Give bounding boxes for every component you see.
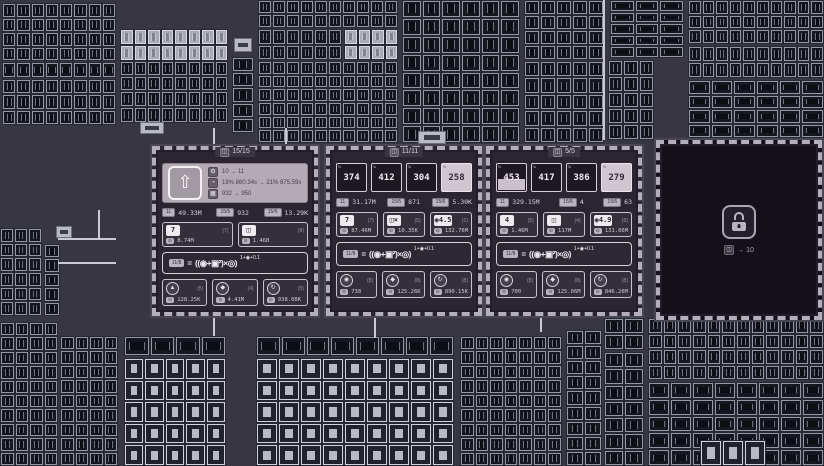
cell [32, 111, 44, 124]
cell [45, 352, 58, 364]
number-tile[interactable]: ↻ 417 [531, 163, 562, 192]
connector-tab [234, 38, 252, 52]
cell [784, 30, 796, 43]
stat-item: 15/6 5.30K [432, 198, 472, 207]
cell [573, 62, 587, 76]
cell [1, 352, 14, 364]
cell [60, 80, 72, 93]
cell [703, 63, 715, 77]
stat-item: 11 329.15M [496, 198, 540, 207]
cell [385, 117, 397, 129]
action-count: (8) [527, 278, 533, 284]
tile-value: 304 [413, 173, 429, 183]
cell [534, 409, 547, 421]
cell [279, 402, 299, 422]
cell [1, 381, 14, 393]
cell [525, 111, 539, 125]
cell [259, 30, 271, 44]
stat-badge: 15/5 [387, 198, 405, 207]
slot-cost: 132.76M [445, 228, 468, 234]
cell [315, 130, 327, 142]
cell [257, 424, 277, 444]
cell [660, 24, 683, 34]
cell [385, 130, 397, 142]
cell [605, 451, 623, 465]
action-button[interactable]: ◆ (8) ⊙ 125.06M [542, 271, 584, 298]
cell [29, 258, 41, 271]
cell [273, 62, 285, 74]
cell [490, 351, 503, 363]
cell [461, 366, 474, 378]
cell [589, 46, 603, 59]
cell [1, 366, 14, 378]
cell [423, 108, 441, 124]
cell [148, 77, 160, 90]
circuit-trace [58, 262, 116, 264]
cell [636, 13, 659, 23]
panel-body: ↻ 374 ↻ 412 ↻ 304 ↻ 258 11 [336, 156, 472, 306]
cell [3, 19, 15, 32]
cell [573, 111, 587, 125]
upgrade-slots-row: 7 (7) ⊙ 87.46M ◫× (5) ⊙ 10.35K [336, 212, 472, 237]
cell [624, 93, 637, 107]
cell [501, 126, 519, 142]
cell [279, 424, 299, 444]
cell [343, 89, 355, 101]
coin-icon: ⊙ [547, 228, 555, 234]
cell [780, 81, 801, 94]
slot-tile: ◉4.9 [594, 215, 613, 226]
cell [462, 37, 480, 53]
cell [567, 437, 583, 450]
cell [105, 395, 118, 407]
cell [207, 402, 225, 422]
cell [442, 73, 460, 89]
lock-icon[interactable] [722, 205, 756, 239]
cell [693, 383, 713, 398]
cell [61, 337, 74, 349]
cell [781, 450, 801, 465]
cell [76, 453, 89, 465]
cell [609, 61, 622, 75]
action-value: 890.15K [445, 289, 468, 295]
cell [32, 95, 44, 108]
cell [757, 96, 778, 109]
actions-row: ◉ (8) ⊙ 700 ◆ (8) ⊙ 125.06M [496, 271, 632, 298]
number-tile[interactable]: ↻ 386 [566, 163, 597, 192]
number-tile[interactable]: ↻ 304 [406, 163, 437, 192]
action-value: 846.26M [605, 289, 628, 295]
cell [462, 73, 480, 89]
action-button[interactable]: ◉ (8) ⊙ 700 [496, 271, 537, 298]
cell [74, 4, 86, 17]
cell-grid-block [60, 336, 118, 466]
action-button[interactable]: ◆ (8) ⊙ 125.26K [382, 271, 424, 298]
cell [301, 359, 321, 379]
cell [689, 1, 701, 14]
formula-exponent: 1+◉+0.1 [414, 246, 434, 252]
action-button[interactable]: ◆ (4) ⊙ 4.41M [212, 279, 257, 306]
cell [371, 76, 383, 88]
cell [90, 337, 103, 349]
upgrade-preview-card: ⇧ ⚙ 10 → 11 ◔ 19% 860.34s → 21% 875.59s … [162, 163, 308, 203]
cell [541, 16, 555, 29]
cell [329, 1, 341, 13]
cell [781, 366, 794, 380]
panel-locked-station: ◫ → 10 [656, 140, 822, 320]
cell [202, 337, 226, 355]
slot-cost: 87.46M [351, 228, 371, 234]
cell [287, 117, 299, 129]
cell [609, 109, 622, 123]
cell [490, 453, 503, 465]
cell [534, 438, 547, 450]
cell [605, 434, 623, 448]
stat-badge: 15/5 [559, 198, 577, 207]
cell [442, 19, 460, 35]
panel-body: ⇧ ⚙ 10 → 11 ◔ 19% 860.34s → 21% 875.59s … [162, 156, 308, 306]
cell-grid-block [0, 322, 58, 466]
cell [660, 1, 683, 11]
number-tile[interactable]: ↻ 412 [371, 163, 402, 192]
cell [279, 381, 299, 401]
cell [189, 77, 201, 90]
cell [202, 92, 214, 106]
tile-value: 374 [343, 173, 359, 183]
cell [16, 323, 29, 335]
cell-grid-block [2, 62, 116, 78]
stat-value: 871 [408, 198, 420, 206]
cell [482, 19, 500, 35]
coin-icon: ⊙ [216, 297, 224, 303]
cell [411, 381, 431, 401]
cell [61, 395, 74, 407]
cell [166, 402, 184, 422]
cell [693, 350, 706, 364]
cell [722, 350, 735, 364]
cell [649, 400, 669, 415]
cell [381, 337, 404, 355]
cell [17, 48, 29, 61]
formula-body: ((◉+▣²)×◎) [369, 249, 411, 260]
cell [433, 359, 453, 379]
connector-tab [418, 131, 446, 144]
cell [501, 90, 519, 106]
cell [567, 331, 583, 344]
cell [135, 77, 147, 90]
cell [135, 108, 147, 122]
cell [301, 381, 321, 401]
unlock-requirement: ◫ → 10 [724, 245, 754, 255]
upgrade-button[interactable]: ⇧ [168, 166, 202, 200]
cell [649, 417, 669, 432]
circuit-board: ◫ 15/15 ⇧ ⚙ 10 → 11 ◔ 19% 860.34s → 21% … [0, 0, 824, 466]
panel-station-2: ◫ 11/11 ↻ 374 ↻ 412 ↻ 304 ↻ 258 [326, 146, 482, 316]
cell [737, 335, 750, 349]
cell [482, 90, 500, 106]
upgrade-slot[interactable]: 7 (7) ⊙ 8.74M [162, 222, 233, 247]
cell [259, 117, 271, 129]
cell [89, 4, 101, 17]
cell [585, 376, 601, 389]
cell [257, 402, 277, 422]
cell [90, 453, 103, 465]
cell [359, 46, 371, 60]
slot-count: (7) [222, 228, 228, 234]
cell-grid-block [608, 60, 654, 140]
cell [216, 108, 228, 122]
slot-count: (5) [415, 218, 421, 224]
cell [737, 366, 750, 380]
cell [371, 89, 383, 101]
upgrade-row: ▦ 932 → 950 [208, 189, 302, 199]
cell [624, 109, 637, 123]
panel-header: ◫ 5/5 [548, 147, 580, 157]
cell [186, 445, 204, 465]
cell [30, 395, 43, 407]
cell [273, 30, 285, 44]
cell [433, 424, 453, 444]
action-button[interactable]: ↻ (8) ⊙ 846.26M [590, 271, 632, 298]
number-tile[interactable]: ↻ 453 [496, 163, 527, 192]
upgrade-slot[interactable]: ◉4.9 (5) ⊙ 131.06M [590, 212, 632, 237]
action-button[interactable]: ▲ (5) ⊙ 128.25K [162, 279, 207, 306]
tile-corner-icon: ↻ [498, 164, 501, 170]
cell [541, 46, 555, 59]
cell [389, 424, 409, 444]
cell [734, 125, 755, 138]
cell [105, 380, 118, 392]
cell [45, 337, 58, 349]
cell [798, 47, 810, 61]
cell [752, 319, 765, 333]
cell [46, 33, 58, 46]
coin-icon: ⊙ [340, 289, 348, 295]
cell [105, 351, 118, 363]
cell [32, 63, 44, 77]
cell [273, 46, 285, 60]
slot-tile: ◫ [242, 225, 256, 236]
cell [671, 433, 691, 448]
cell [585, 346, 601, 359]
cell [329, 30, 341, 44]
cell [660, 36, 683, 46]
cell [273, 15, 285, 27]
cell [1, 409, 14, 421]
cell [585, 437, 601, 450]
number-tiles-row: ↻ 453 ↻ 417 ↻ 386 ↻ 279 [496, 163, 632, 192]
circuit-trace [98, 210, 100, 240]
coin-icon: ⊙ [340, 228, 348, 234]
cell [301, 46, 313, 60]
cell [461, 453, 474, 465]
upgrade-slot[interactable]: ◫× (5) ⊙ 10.35K [383, 212, 425, 237]
cell [371, 130, 383, 142]
cell [216, 92, 228, 106]
cell [32, 4, 44, 17]
cell [567, 422, 583, 435]
cell [162, 77, 174, 90]
cell [548, 409, 561, 421]
cell [301, 424, 321, 444]
cell [345, 381, 365, 401]
cell [589, 62, 603, 76]
stat-badge: 15/6 [603, 198, 621, 207]
cell [649, 350, 662, 364]
cell [202, 62, 214, 75]
cell [1, 438, 14, 450]
action-button[interactable]: ↻ (8) ⊙ 890.15K [430, 271, 472, 298]
cell [557, 62, 571, 76]
formula-badge: 11/8 [503, 250, 518, 258]
number-tile-selected[interactable]: ↻ 258 [441, 163, 472, 192]
cell [329, 76, 341, 88]
cell [371, 62, 383, 74]
cell [649, 450, 669, 465]
cell [45, 424, 58, 436]
cell [567, 361, 583, 374]
cell [76, 409, 89, 421]
number-tiles-row: ↻ 374 ↻ 412 ↻ 304 ↻ 258 [336, 163, 472, 192]
cell [567, 391, 583, 404]
upgrade-slot[interactable]: ◫ (4) ⊙ 117M [543, 212, 585, 237]
number-tile-selected[interactable]: ↻ 279 [601, 163, 632, 192]
stats-row: 11 49.33M 15/5 932 15/6 13.29K [162, 208, 308, 217]
cell [636, 36, 659, 46]
cell [780, 96, 801, 109]
cell [784, 1, 796, 14]
cell [462, 19, 480, 35]
grid-icon: ▦ [208, 189, 218, 199]
cell [423, 90, 441, 106]
cell [186, 359, 204, 379]
cell [693, 366, 706, 380]
cell [287, 89, 299, 101]
cell [810, 335, 823, 349]
upgrade-slot[interactable]: ◉4.5 (1) ⊙ 132.76M [430, 212, 472, 237]
formula-body: ((◉+▣²)×◎) [195, 258, 237, 269]
cell [567, 376, 583, 389]
cell [343, 76, 355, 88]
timer-icon: ◔ [208, 178, 218, 188]
cell [30, 352, 43, 364]
cell [734, 81, 755, 94]
action-button[interactable]: ↻ (5) ⊙ 938.08K [263, 279, 308, 306]
cell [433, 381, 453, 401]
cell [796, 366, 809, 380]
cell [525, 95, 539, 109]
upgrade-row-text: 19% 860.34s → 21% 875.59s [222, 180, 301, 186]
stat-item: 15/6 13.29K [264, 208, 308, 217]
cell [476, 438, 489, 450]
cell [689, 16, 701, 29]
cell [148, 46, 160, 60]
gear-icon: ⚙ [208, 167, 218, 177]
cell [442, 1, 460, 17]
cell [16, 409, 29, 421]
panel-header-count: 15/15 [232, 147, 250, 157]
cell [611, 36, 634, 46]
action-count: (4) [248, 286, 254, 292]
cell [30, 323, 43, 335]
cell [693, 417, 713, 432]
cell [175, 92, 187, 106]
cell [315, 1, 327, 13]
cell [46, 48, 58, 61]
cell [315, 76, 327, 88]
cell [501, 19, 519, 35]
cell [186, 424, 204, 444]
cell [589, 78, 603, 92]
cell [780, 125, 801, 138]
cell [664, 366, 677, 380]
cell [636, 47, 659, 57]
cell [482, 126, 500, 142]
tile-corner-icon: ↻ [408, 164, 411, 170]
cell [287, 1, 299, 13]
cell [730, 16, 742, 29]
cell [625, 353, 643, 367]
cell [567, 346, 583, 359]
cell [323, 402, 343, 422]
cell [757, 110, 778, 123]
cell [30, 381, 43, 393]
cell [273, 130, 285, 142]
cell [781, 383, 801, 398]
upgrade-slot[interactable]: 4 (5) ⊙ 1.46M [496, 212, 538, 237]
cell [367, 445, 387, 465]
cell [301, 76, 313, 88]
cell [411, 445, 431, 465]
cell [433, 445, 453, 465]
cell [737, 350, 750, 364]
number-tile[interactable]: ↻ 374 [336, 163, 367, 192]
cell [45, 323, 58, 335]
cell [162, 62, 174, 75]
cell [811, 63, 823, 77]
cell-grid-block [0, 228, 42, 316]
cell [175, 46, 187, 60]
stat-badge: 15/6 [264, 208, 282, 217]
tile-value: 279 [608, 173, 624, 183]
cell [730, 30, 742, 43]
cell [476, 366, 489, 378]
production-formula: 11/8 = ((◉+▣²)×◎) 1+◉+0.1 [162, 252, 308, 274]
cell [625, 386, 643, 400]
cell [148, 30, 160, 44]
cell [557, 1, 571, 14]
cell [461, 424, 474, 436]
cell [30, 424, 43, 436]
upgrade-slot[interactable]: 7 (7) ⊙ 87.46M [336, 212, 378, 237]
cell [784, 47, 796, 61]
cell-grid-block [566, 330, 602, 466]
circuit-trace [285, 128, 287, 146]
action-button[interactable]: ◉ (8) ⊙ 738 [336, 271, 377, 298]
cell [640, 109, 653, 123]
cell [461, 409, 474, 421]
cell [105, 438, 118, 450]
upgrade-slot[interactable]: ◫ (8) ⊙ 1.46B [238, 222, 309, 247]
cell [605, 319, 623, 333]
cell [482, 37, 500, 53]
cell [257, 381, 277, 401]
cell [345, 359, 365, 379]
cell [207, 359, 225, 379]
cell [233, 58, 253, 71]
cell [611, 13, 634, 23]
cell [541, 62, 555, 76]
